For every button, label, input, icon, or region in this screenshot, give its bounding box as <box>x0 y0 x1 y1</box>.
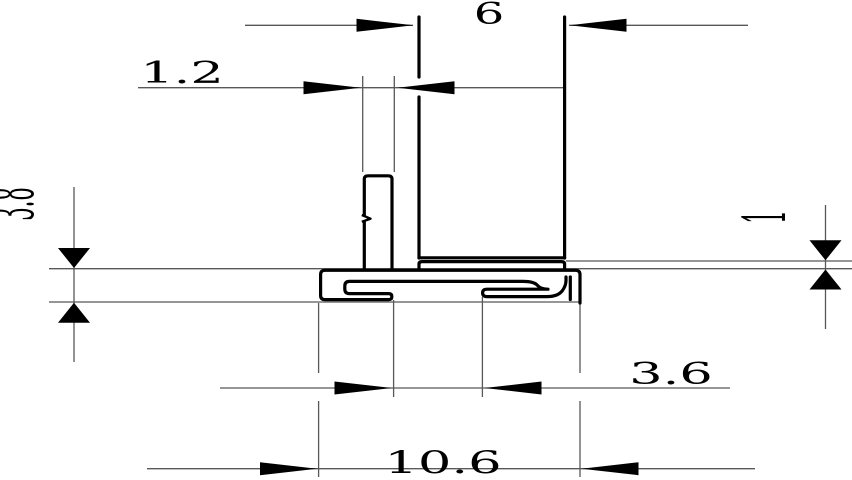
dim-label-slot-opening: 3.6 <box>629 357 712 392</box>
extension-lines <box>319 76 580 477</box>
technical-drawing-page: 6 1.2 3.8 1 3.6 10.6 <box>0 0 852 480</box>
fin-break-notch <box>362 215 371 222</box>
arrow-overall-width-left <box>260 462 317 475</box>
arrow-glass-width-right <box>570 19 627 32</box>
dimension-labels: 6 1.2 3.8 1 3.6 10.6 <box>0 0 800 480</box>
dim-label-section-height: 3.8 <box>0 187 48 221</box>
technical-drawing-canvas: 6 1.2 3.8 1 3.6 10.6 <box>0 0 852 480</box>
arrow-ledge-height-top <box>810 240 842 260</box>
profile-outline <box>321 176 580 303</box>
arrow-fin-thickness-left <box>304 81 361 94</box>
arrow-slot-opening-left <box>335 382 392 395</box>
glass-panel <box>419 17 565 258</box>
arrow-overall-width-right <box>582 462 639 475</box>
base-outline <box>321 270 580 303</box>
arrow-glass-width-left <box>357 19 414 32</box>
dim-label-glass-width: 6 <box>474 0 505 31</box>
arrow-section-height-bottom <box>58 303 90 323</box>
dim-label-fin-thickness: 1.2 <box>140 56 223 91</box>
arrow-ledge-height-bottom <box>810 270 842 290</box>
fin-outline <box>364 176 392 269</box>
arrow-slot-opening-right <box>485 382 542 395</box>
dim-label-overall-width: 10.6 <box>384 445 501 480</box>
arrow-fin-thickness-right <box>398 81 455 94</box>
arrow-section-height-top <box>58 248 90 268</box>
dim-label-ledge-height: 1 <box>732 210 800 223</box>
